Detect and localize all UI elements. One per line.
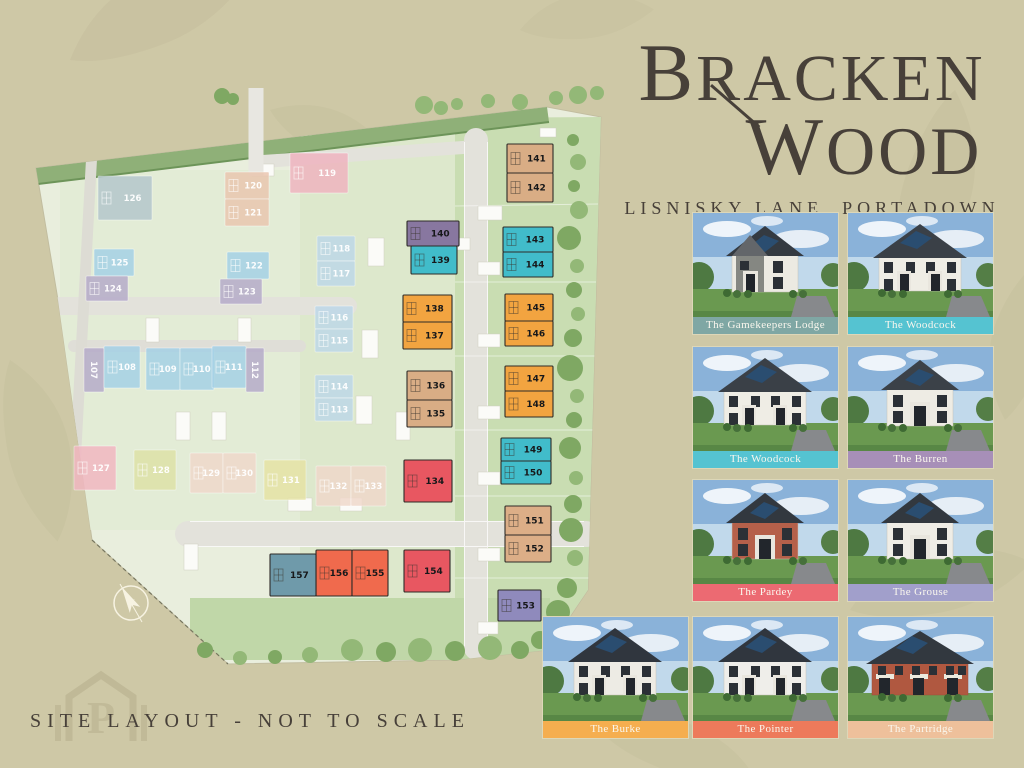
plot-142: 142 xyxy=(507,173,553,202)
svg-text:138: 138 xyxy=(425,305,444,315)
plot-151: 151 xyxy=(505,506,551,535)
svg-text:116: 116 xyxy=(330,314,348,324)
svg-text:112: 112 xyxy=(249,361,259,379)
svg-text:118: 118 xyxy=(332,245,350,255)
svg-text:108: 108 xyxy=(118,363,136,373)
plot-148: 148 xyxy=(505,391,553,417)
plot-128: 128 xyxy=(134,450,176,490)
house-name-label: The Woodcock xyxy=(848,317,993,334)
svg-text:147: 147 xyxy=(526,375,545,385)
plot-136: 136 xyxy=(407,371,452,400)
house-card-the-gamekeepers-lodge: The Gamekeepers Lodge xyxy=(693,213,838,334)
svg-text:107: 107 xyxy=(88,361,98,379)
svg-text:152: 152 xyxy=(525,545,544,555)
plot-139: 139 xyxy=(411,246,457,274)
plot-117: 117 xyxy=(317,261,355,286)
svg-text:119: 119 xyxy=(318,169,336,179)
house-name-label: The Pardey xyxy=(693,584,838,601)
plot-133: 133 xyxy=(351,466,386,506)
svg-text:124: 124 xyxy=(104,285,122,295)
house-photo xyxy=(848,480,993,584)
svg-text:110: 110 xyxy=(193,365,211,375)
plot-150: 150 xyxy=(501,461,551,484)
plot-130: 130 xyxy=(223,453,256,493)
house-name-label: The Gamekeepers Lodge xyxy=(693,317,838,334)
svg-text:126: 126 xyxy=(124,194,142,204)
plot-122: 122 xyxy=(227,252,269,279)
house-photo xyxy=(693,213,838,317)
plot-109: 109 xyxy=(146,348,180,390)
plot-147: 147 xyxy=(505,366,553,391)
plot-131: 131 xyxy=(264,460,306,500)
svg-text:111: 111 xyxy=(225,363,243,373)
house-photo xyxy=(848,617,993,721)
plot-107: 107 xyxy=(84,348,104,392)
svg-text:120: 120 xyxy=(244,182,262,192)
plot-138: 138 xyxy=(403,295,452,322)
plot-113: 113 xyxy=(315,398,353,421)
svg-text:156: 156 xyxy=(330,569,349,579)
svg-text:122: 122 xyxy=(245,262,263,272)
plot-157: 157 xyxy=(270,554,316,596)
house-name-label: The Burke xyxy=(543,721,688,738)
plot-124: 124 xyxy=(86,276,128,301)
svg-text:140: 140 xyxy=(431,230,450,240)
svg-text:148: 148 xyxy=(526,400,545,410)
svg-text:143: 143 xyxy=(526,236,545,246)
plot-143: 143 xyxy=(503,227,553,252)
svg-text:129: 129 xyxy=(202,469,220,479)
svg-text:153: 153 xyxy=(516,602,535,612)
plot-127: 127 xyxy=(74,446,116,490)
plot-129: 129 xyxy=(190,453,223,493)
svg-text:115: 115 xyxy=(330,337,348,347)
svg-text:155: 155 xyxy=(366,569,385,579)
svg-text:114: 114 xyxy=(330,383,348,393)
svg-text:137: 137 xyxy=(425,332,444,342)
plot-145: 145 xyxy=(505,294,553,321)
house-photo xyxy=(693,347,838,451)
svg-text:144: 144 xyxy=(526,261,545,271)
house-card-the-woodcock: The Woodcock xyxy=(848,213,993,334)
house-name-label: The Burren xyxy=(848,451,993,468)
compass-north-icon: N xyxy=(114,584,148,623)
plot-121: 121 xyxy=(225,199,269,226)
plot-134: 134 xyxy=(404,460,452,502)
plot-110: 110 xyxy=(180,348,214,390)
svg-text:109: 109 xyxy=(159,365,177,375)
house-photo xyxy=(693,617,838,721)
svg-text:135: 135 xyxy=(426,410,445,420)
house-photo xyxy=(693,480,838,584)
plot-111: 111 xyxy=(212,346,246,388)
svg-text:150: 150 xyxy=(524,469,543,479)
svg-text:131: 131 xyxy=(282,476,300,486)
plot-146: 146 xyxy=(505,321,553,346)
svg-text:128: 128 xyxy=(152,466,170,476)
svg-text:133: 133 xyxy=(365,482,383,492)
svg-text:113: 113 xyxy=(330,406,348,416)
plot-135: 135 xyxy=(407,400,452,427)
house-photo xyxy=(543,617,688,721)
house-name-label: The Grouse xyxy=(848,584,993,601)
plot-112: 112 xyxy=(246,348,264,392)
house-card-the-grouse: The Grouse xyxy=(848,480,993,601)
plot-153: 153 xyxy=(498,590,541,621)
house-photo xyxy=(848,347,993,451)
plot-156: 156 xyxy=(316,550,352,596)
plot-125: 125 xyxy=(94,249,134,276)
plot-137: 137 xyxy=(403,322,452,349)
house-card-the-partridge: The Partridge xyxy=(848,617,993,738)
plot-140: 140 xyxy=(407,221,459,246)
plot-132: 132 xyxy=(316,466,351,506)
svg-text:136: 136 xyxy=(426,382,445,392)
house-name-label: The Pointer xyxy=(693,721,838,738)
plot-118: 118 xyxy=(317,236,355,261)
svg-text:130: 130 xyxy=(235,469,253,479)
site-note: SITE LAYOUT - NOT TO SCALE xyxy=(30,710,470,733)
plot-152: 152 xyxy=(505,535,551,562)
house-card-the-burren: The Burren xyxy=(848,347,993,468)
plot-108: 108 xyxy=(104,346,140,388)
plot-119: 119 xyxy=(290,153,348,193)
plot-141: 141 xyxy=(507,144,553,173)
svg-text:142: 142 xyxy=(527,184,546,194)
svg-text:127: 127 xyxy=(92,464,110,474)
development-title: BRACKEN WOOD LISNISKY LANE, PORTADOWN xyxy=(600,34,1024,219)
title-line2: WOOD xyxy=(600,108,1024,186)
plot-149: 149 xyxy=(501,438,551,461)
plot-116: 116 xyxy=(315,306,353,329)
house-card-the-burke: The Burke xyxy=(543,617,688,738)
house-card-the-woodcock: The Woodcock xyxy=(693,347,838,468)
house-name-label: The Partridge xyxy=(848,721,993,738)
house-card-the-pardey: The Pardey xyxy=(693,480,838,601)
svg-text:134: 134 xyxy=(425,477,444,487)
svg-text:117: 117 xyxy=(332,270,350,280)
svg-text:121: 121 xyxy=(244,209,262,219)
plot-144: 144 xyxy=(503,252,553,277)
svg-text:N: N xyxy=(127,599,136,610)
brochure-canvas: 1261201211191251241221231181171161151141… xyxy=(0,0,1024,768)
svg-text:145: 145 xyxy=(526,304,545,314)
svg-text:132: 132 xyxy=(330,482,348,492)
plot-126: 126 xyxy=(98,176,152,220)
svg-text:141: 141 xyxy=(527,155,546,165)
plot-123: 123 xyxy=(220,279,262,304)
svg-text:154: 154 xyxy=(424,567,443,577)
svg-text:123: 123 xyxy=(238,288,256,298)
plot-155: 155 xyxy=(352,550,388,596)
svg-text:146: 146 xyxy=(526,330,545,340)
house-card-the-pointer: The Pointer xyxy=(693,617,838,738)
svg-text:139: 139 xyxy=(431,256,450,266)
plot-120: 120 xyxy=(225,172,269,199)
plot-154: 154 xyxy=(404,550,450,592)
svg-text:151: 151 xyxy=(525,517,544,527)
plot-114: 114 xyxy=(315,375,353,398)
svg-text:125: 125 xyxy=(111,259,129,269)
house-name-label: The Woodcock xyxy=(693,451,838,468)
svg-text:157: 157 xyxy=(290,571,309,581)
house-photo xyxy=(848,213,993,317)
plot-115: 115 xyxy=(315,329,353,352)
svg-text:149: 149 xyxy=(524,446,543,456)
